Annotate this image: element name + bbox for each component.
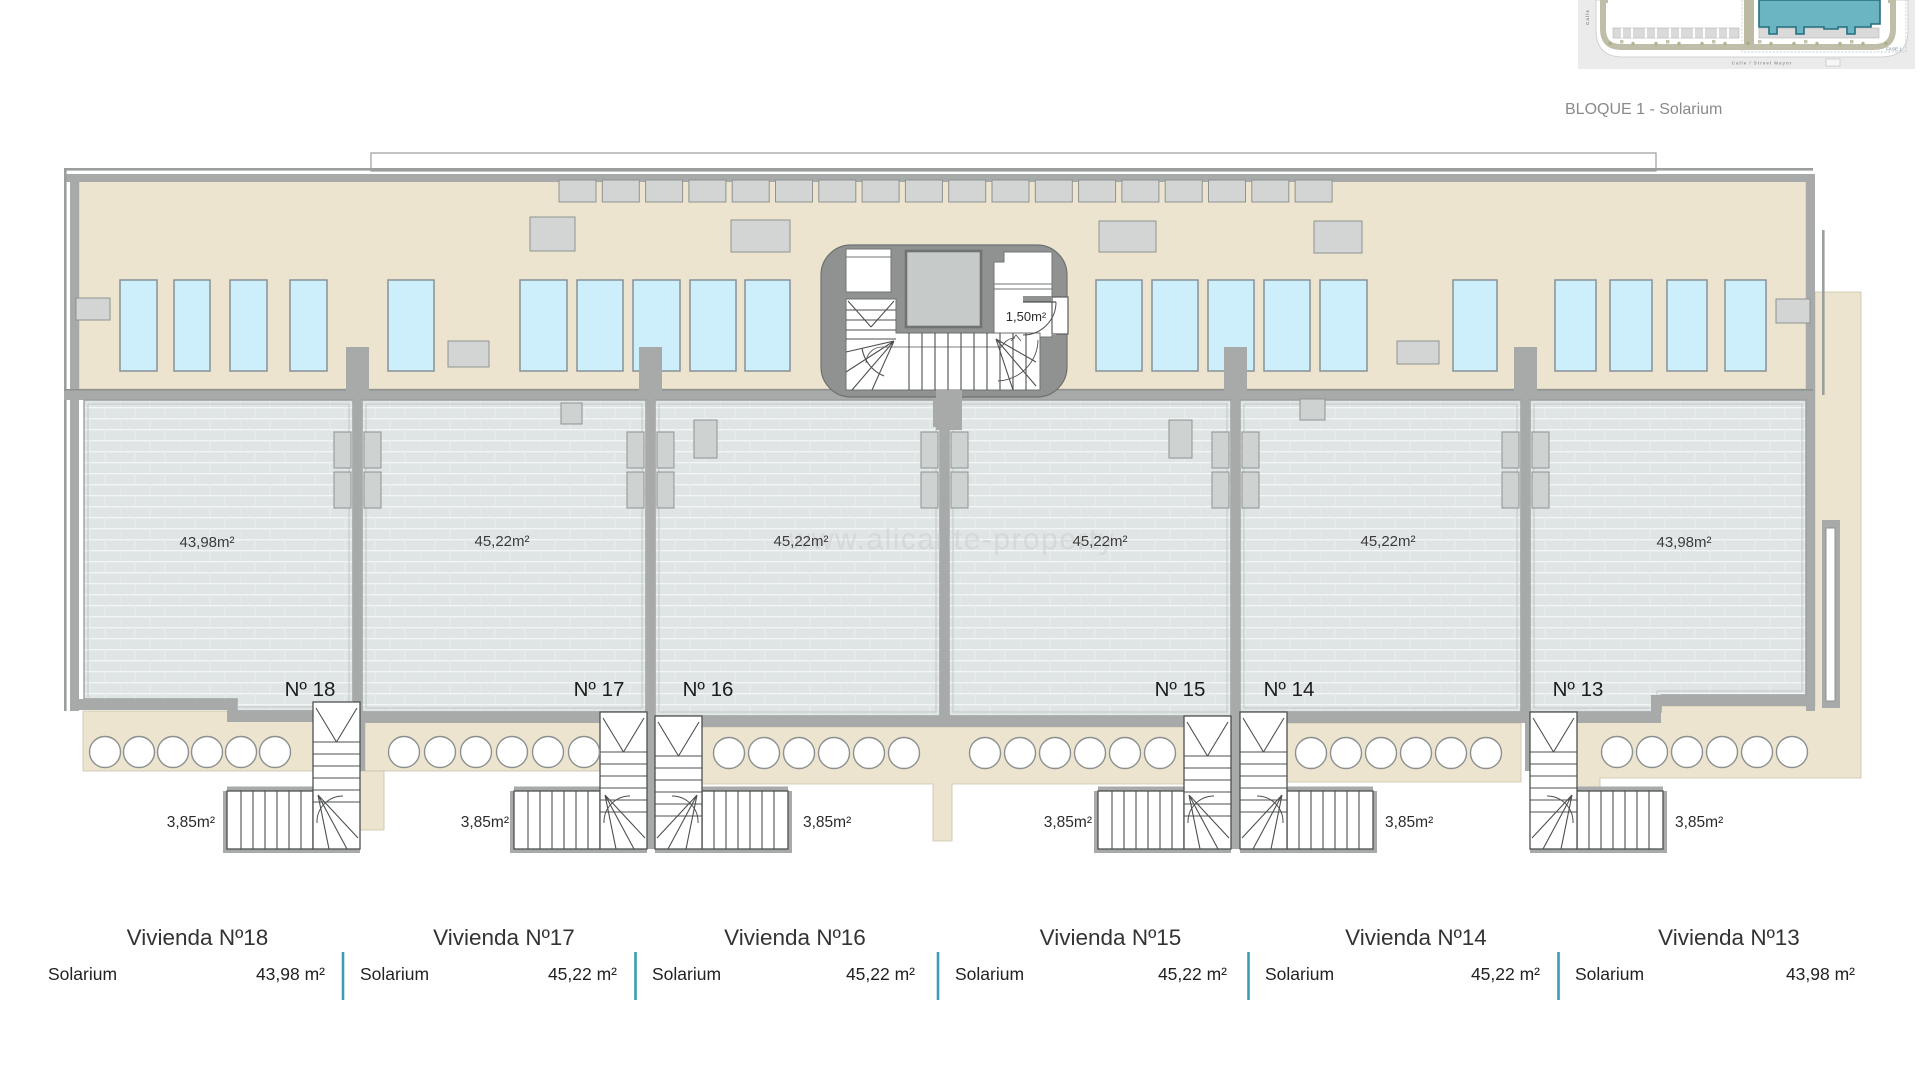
svg-text:Solarium: Solarium	[1265, 964, 1334, 984]
svg-text:3,85m²: 3,85m²	[461, 814, 509, 831]
svg-text:45,22 m²: 45,22 m²	[1471, 964, 1540, 984]
svg-text:Solarium: Solarium	[360, 964, 429, 984]
svg-text:45,22m²: 45,22m²	[1360, 533, 1415, 550]
svg-text:3,85m²: 3,85m²	[803, 814, 851, 831]
svg-text:3,85m²: 3,85m²	[1675, 814, 1723, 831]
svg-text:Nº 18: Nº 18	[285, 678, 336, 701]
svg-text:Solarium: Solarium	[1575, 964, 1644, 984]
svg-text:45,22 m²: 45,22 m²	[1158, 964, 1227, 984]
svg-text:www.alicante-property: www.alicante-property	[788, 523, 1116, 556]
svg-text:Vivienda Nº13: Vivienda Nº13	[1658, 925, 1800, 950]
svg-text:Solarium: Solarium	[955, 964, 1024, 984]
svg-text:45,22m²: 45,22m²	[773, 533, 828, 550]
svg-text:Nº 17: Nº 17	[574, 678, 625, 701]
svg-text:45,22m²: 45,22m²	[1072, 533, 1127, 550]
svg-text:Nº 16: Nº 16	[683, 678, 734, 701]
svg-text:FASE 1: FASE 1	[1886, 47, 1902, 52]
svg-text:Solarium: Solarium	[48, 964, 117, 984]
svg-text:45,22 m²: 45,22 m²	[846, 964, 915, 984]
svg-text:3,85m²: 3,85m²	[167, 814, 215, 831]
svg-text:45,22m²: 45,22m²	[474, 533, 529, 550]
svg-text:Nº 13: Nº 13	[1553, 678, 1604, 701]
svg-text:Vivienda Nº15: Vivienda Nº15	[1040, 925, 1182, 950]
svg-text:43,98m²: 43,98m²	[179, 534, 234, 551]
svg-text:Vivienda Nº14: Vivienda Nº14	[1345, 925, 1487, 950]
svg-text:BLOQUE 1 - Solarium: BLOQUE 1 - Solarium	[1565, 101, 1722, 118]
svg-text:Solarium: Solarium	[652, 964, 721, 984]
svg-text:1,50m²: 1,50m²	[1006, 309, 1047, 324]
svg-text:43,98 m²: 43,98 m²	[256, 964, 325, 984]
svg-text:3,85m²: 3,85m²	[1385, 814, 1433, 831]
svg-text:43,98 m²: 43,98 m²	[1786, 964, 1855, 984]
svg-text:Nº 15: Nº 15	[1155, 678, 1206, 701]
svg-text:43,98m²: 43,98m²	[1656, 534, 1711, 551]
svg-text:Vivienda Nº18: Vivienda Nº18	[127, 925, 269, 950]
svg-text:Nº 14: Nº 14	[1264, 678, 1315, 701]
svg-text:Vivienda Nº17: Vivienda Nº17	[433, 925, 575, 950]
svg-text:Vivienda Nº16: Vivienda Nº16	[724, 925, 866, 950]
svg-text:Calle / Street Mayor: Calle / Street Mayor	[1732, 61, 1793, 66]
svg-text:Calle: Calle	[1585, 9, 1590, 25]
svg-text:45,22 m²: 45,22 m²	[548, 964, 617, 984]
svg-text:3,85m²: 3,85m²	[1044, 814, 1092, 831]
